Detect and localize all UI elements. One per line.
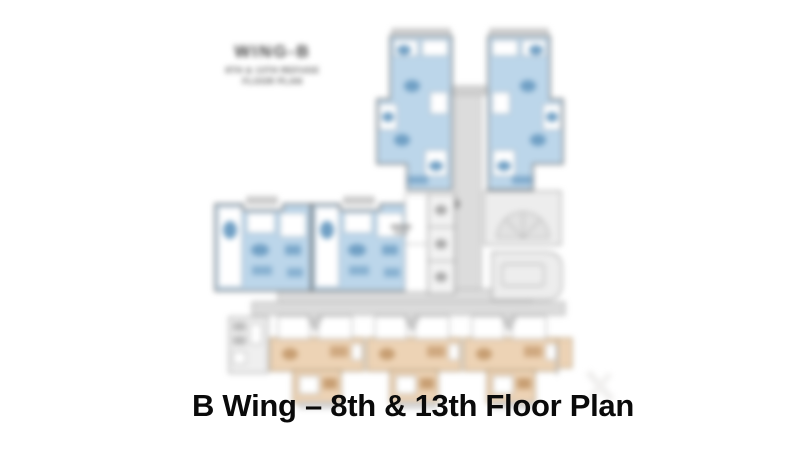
- balcony: [247, 197, 277, 204]
- small-label-smudge: [391, 225, 411, 229]
- room: [422, 40, 448, 56]
- furniture-blob: [223, 221, 237, 239]
- room: [247, 213, 275, 233]
- floor-plan-drawing: [0, 0, 800, 450]
- apartment-unit-top-left: [377, 29, 452, 190]
- floor-plan-image: WING-B 8TH & 13TH REFUGE FLOOR PLAN: [0, 0, 800, 450]
- lift-icon: [435, 205, 447, 215]
- furniture-blob: [382, 112, 394, 122]
- furniture-blob: [408, 176, 428, 184]
- service-room: [405, 194, 428, 292]
- page: WING-B 8TH & 13TH REFUGE FLOOR PLAN: [0, 0, 800, 450]
- stair-icon: [233, 322, 246, 331]
- unit-edge: [558, 338, 572, 368]
- apartment-unit-top-right: [488, 29, 563, 190]
- balcony: [392, 29, 450, 36]
- wall-line: [556, 345, 558, 375]
- furniture-blob: [429, 161, 443, 171]
- furniture-blob: [397, 45, 411, 55]
- apartment-unit-mid-right: [312, 197, 408, 291]
- caption-title: B Wing – 8th & 13th Floor Plan: [13, 388, 800, 424]
- furniture-blob: [404, 80, 420, 92]
- stair-icon: [233, 336, 246, 345]
- furniture-blob: [330, 346, 348, 357]
- furniture-blob: [394, 134, 410, 146]
- room: [318, 316, 352, 339]
- corridor-connector: [452, 86, 486, 95]
- furniture-blob: [287, 268, 303, 277]
- corridor-vertical: [455, 92, 481, 304]
- room: [352, 344, 362, 360]
- room: [233, 352, 246, 364]
- lift-icon: [435, 239, 447, 249]
- room: [280, 213, 306, 237]
- furniture-blob: [252, 266, 272, 275]
- lift-icon: [435, 272, 447, 282]
- room: [430, 92, 448, 114]
- room: [218, 207, 242, 287]
- room: [250, 324, 262, 344]
- corridor-bottom: [252, 302, 565, 315]
- furniture-blob: [282, 348, 298, 360]
- room: [278, 316, 310, 339]
- amenity-room: [492, 252, 562, 300]
- apartment-unit-mid-left: [215, 197, 311, 291]
- furniture-blob: [251, 244, 269, 256]
- furniture-blob: [285, 245, 301, 255]
- small-label-smudge: [394, 231, 408, 234]
